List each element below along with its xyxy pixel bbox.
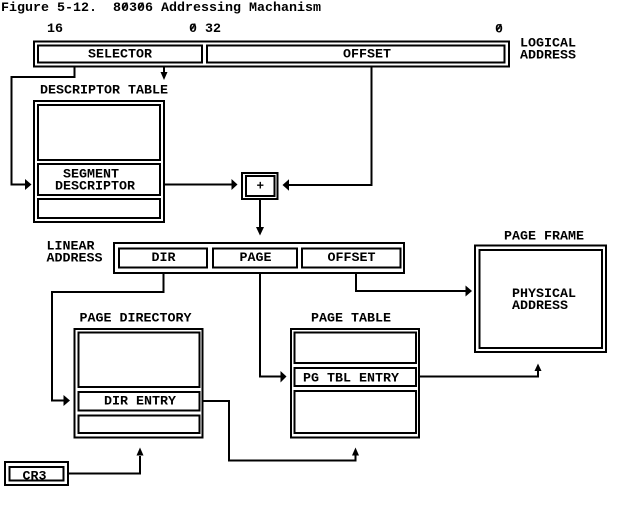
svg-text:PAGE: PAGE: [240, 251, 272, 266]
svg-text:ADDRESS: ADDRESS: [47, 252, 103, 267]
svg-text:ADDRESS: ADDRESS: [520, 49, 576, 64]
svg-text:16: 16: [47, 22, 63, 37]
svg-text:PAGE FRAME: PAGE FRAME: [504, 230, 584, 245]
svg-text:PG TBL ENTRY: PG TBL ENTRY: [303, 372, 399, 387]
svg-text:PAGE TABLE: PAGE TABLE: [311, 312, 391, 327]
svg-text:+: +: [257, 180, 265, 194]
svg-text:0 32: 0 32: [189, 22, 221, 37]
svg-text:DESCRIPTOR TABLE: DESCRIPTOR TABLE: [40, 84, 168, 99]
svg-text:CR3: CR3: [23, 470, 47, 485]
svg-text:Figure 5-12. 80306 Addressing: Figure 5-12. 80306 Addressing Machanism: [1, 1, 321, 16]
svg-text:ADDRESS: ADDRESS: [512, 299, 568, 314]
svg-text:DIR ENTRY: DIR ENTRY: [104, 395, 176, 410]
svg-text:PAGE DIRECTORY: PAGE DIRECTORY: [80, 312, 192, 327]
svg-text:OFFSET: OFFSET: [328, 251, 376, 266]
svg-text:SELECTOR: SELECTOR: [88, 48, 152, 63]
svg-text:DIR: DIR: [152, 251, 176, 266]
svg-text:OFFSET: OFFSET: [343, 48, 391, 63]
svg-text:DESCRIPTOR: DESCRIPTOR: [55, 180, 135, 195]
svg-text:0: 0: [495, 23, 503, 38]
